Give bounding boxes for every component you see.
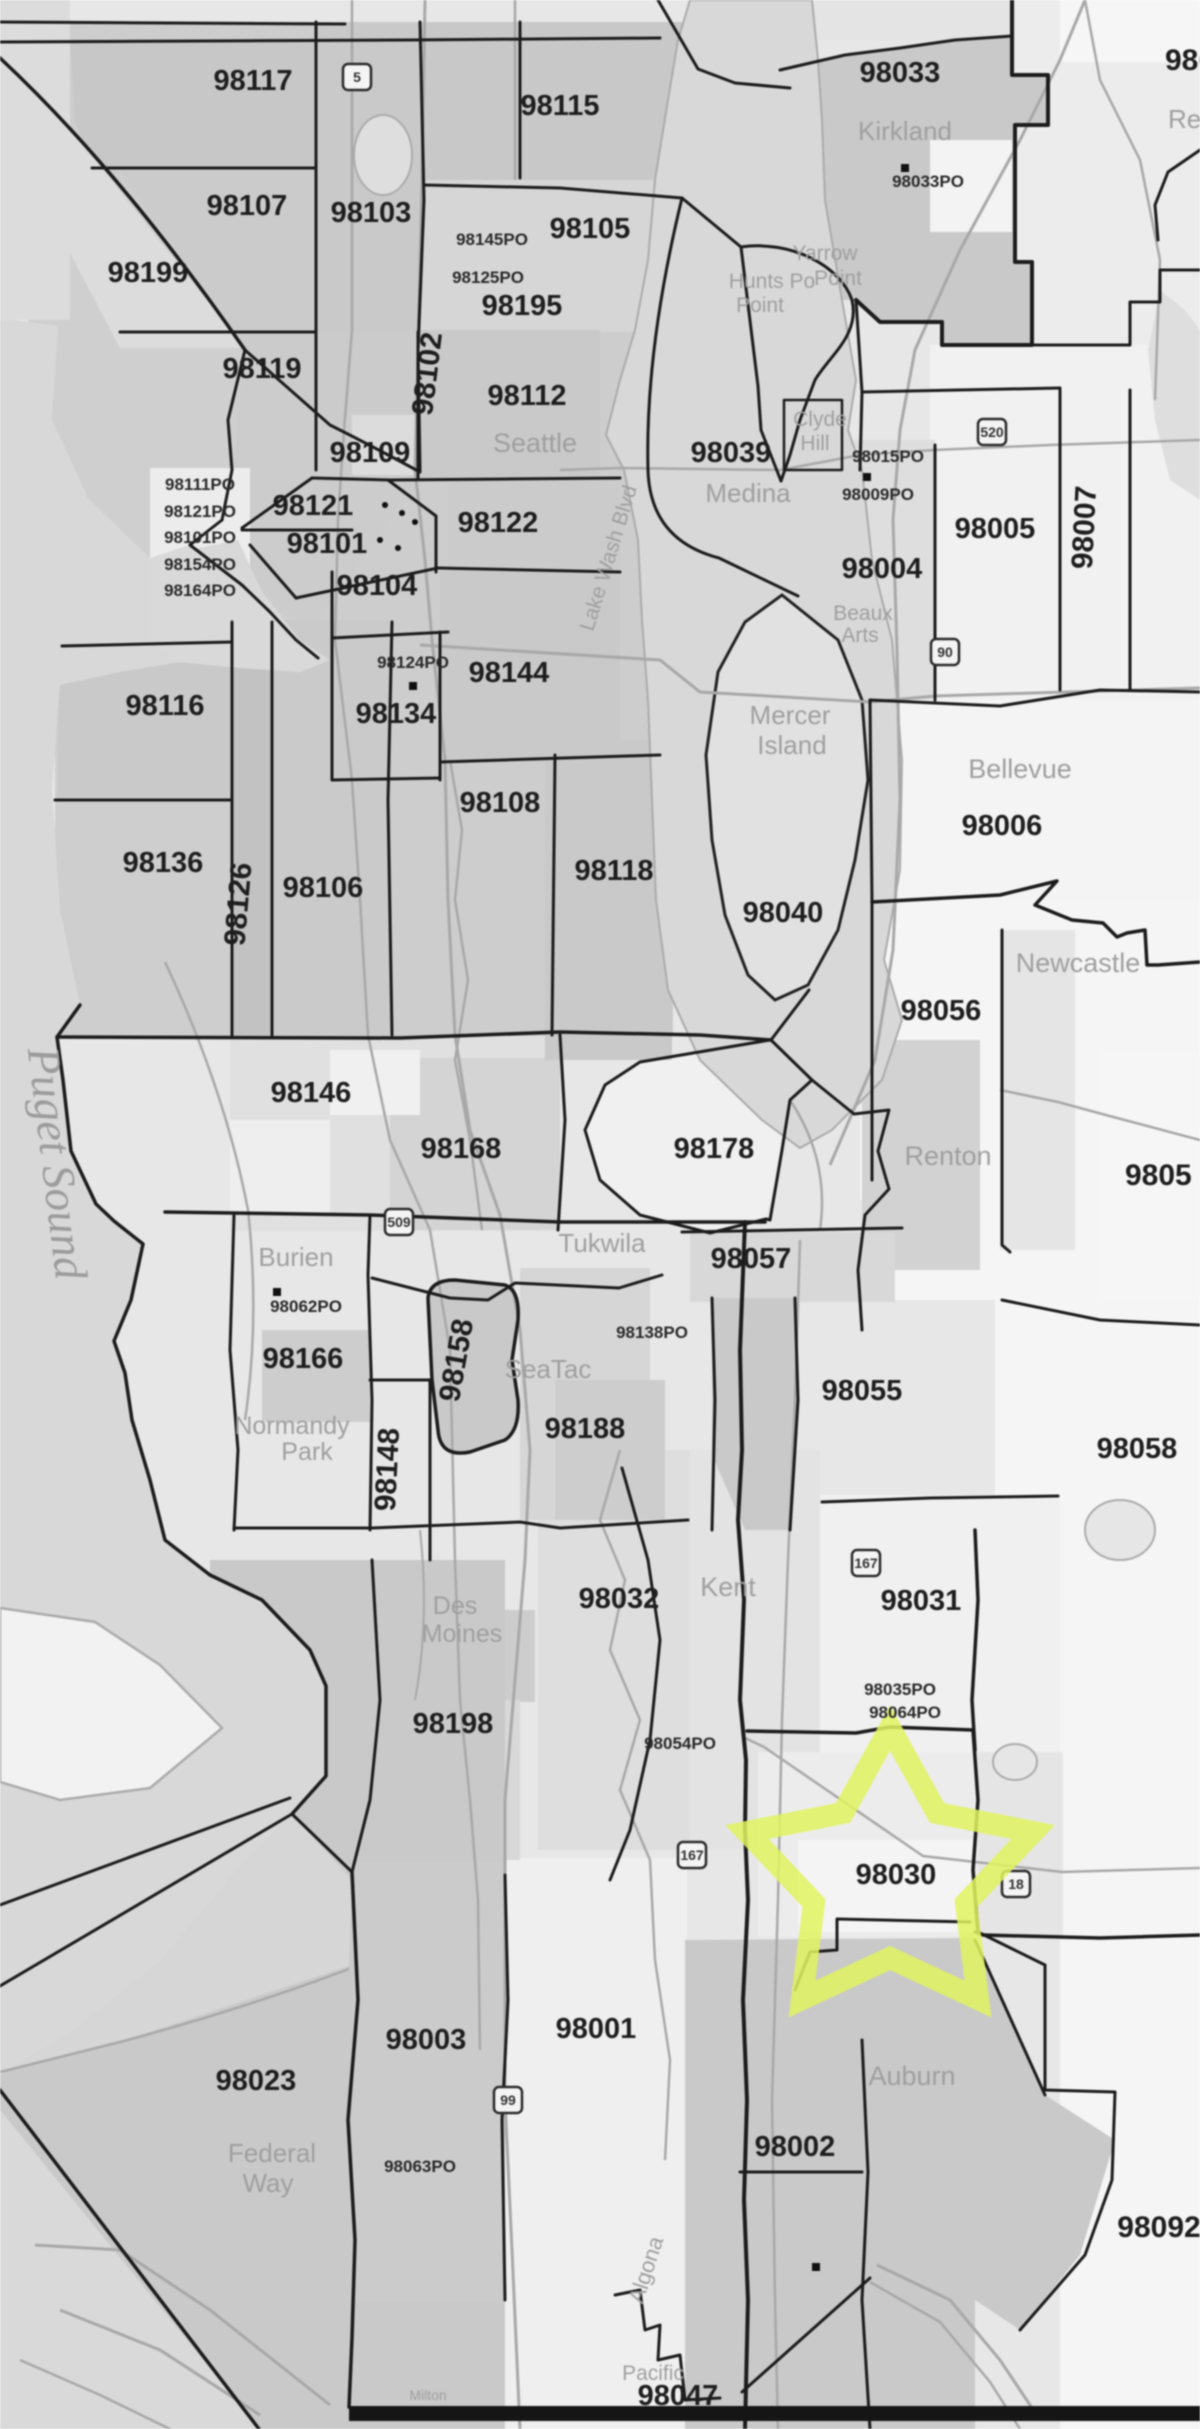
svg-text:Bellevue: Bellevue [968, 754, 1072, 784]
svg-text:5: 5 [353, 69, 361, 85]
svg-text:98033: 98033 [860, 57, 941, 89]
svg-text:Burien: Burien [258, 1242, 333, 1272]
svg-text:98111PO: 98111PO [165, 475, 235, 494]
svg-text:98107: 98107 [207, 190, 288, 222]
svg-text:98040: 98040 [743, 897, 824, 929]
svg-text:98144: 98144 [469, 657, 550, 689]
svg-text:98199: 98199 [108, 257, 189, 289]
svg-text:98092: 98092 [1117, 2211, 1200, 2244]
svg-text:Mercer: Mercer [750, 700, 831, 730]
svg-text:Renton: Renton [904, 1141, 991, 1171]
svg-text:Seattle: Seattle [493, 428, 577, 458]
svg-text:98033PO: 98033PO [892, 172, 964, 191]
svg-text:98188: 98188 [545, 1413, 626, 1445]
svg-text:98032: 98032 [579, 1583, 660, 1615]
svg-text:98109: 98109 [330, 437, 411, 469]
svg-text:98121PO: 98121PO [164, 502, 236, 521]
svg-text:98064PO: 98064PO [869, 1703, 941, 1722]
svg-text:98002: 98002 [755, 2131, 836, 2163]
svg-text:98122: 98122 [458, 507, 539, 539]
svg-text:98055: 98055 [822, 1375, 903, 1407]
svg-text:98198: 98198 [413, 1708, 494, 1740]
svg-text:Point: Point [814, 267, 862, 290]
svg-text:Milton: Milton [409, 2387, 446, 2403]
svg-text:Federal: Federal [228, 2138, 316, 2168]
svg-text:Yarrow: Yarrow [793, 242, 859, 265]
svg-text:98058: 98058 [1097, 1433, 1178, 1465]
svg-text:98112: 98112 [487, 380, 566, 412]
svg-text:99: 99 [500, 2092, 516, 2108]
svg-text:98004: 98004 [842, 553, 923, 585]
svg-text:Newcastle: Newcastle [1016, 948, 1141, 978]
svg-text:98057: 98057 [711, 1243, 792, 1275]
svg-text:Way: Way [242, 2168, 293, 2198]
svg-text:98115: 98115 [520, 90, 599, 122]
svg-text:Pacific: Pacific [622, 2362, 684, 2385]
svg-text:Arts: Arts [841, 624, 878, 647]
svg-text:98125PO: 98125PO [452, 268, 524, 287]
svg-text:98007: 98007 [1066, 485, 1103, 570]
svg-text:98001: 98001 [556, 2013, 637, 2045]
svg-text:Island: Island [757, 730, 826, 760]
svg-text:98103: 98103 [331, 197, 412, 229]
svg-text:98031: 98031 [881, 1585, 962, 1617]
svg-text:Tukwila: Tukwila [558, 1228, 646, 1258]
svg-text:98005: 98005 [955, 513, 1036, 545]
svg-text:98106: 98106 [283, 872, 364, 904]
svg-text:Kent: Kent [700, 1572, 756, 1602]
svg-text:Moines: Moines [422, 1620, 503, 1648]
svg-text:98117: 98117 [213, 65, 292, 97]
svg-text:98136: 98136 [123, 847, 204, 879]
svg-text:Park: Park [281, 1438, 333, 1466]
svg-text:98121: 98121 [273, 490, 354, 522]
svg-text:98062PO: 98062PO [270, 1297, 342, 1316]
svg-text:98035PO: 98035PO [864, 1680, 936, 1699]
svg-text:98138PO: 98138PO [616, 1323, 688, 1342]
svg-text:98108: 98108 [460, 787, 541, 819]
svg-text:98006: 98006 [962, 810, 1043, 842]
svg-text:98145PO: 98145PO [456, 230, 528, 249]
svg-text:SeaTac: SeaTac [505, 1354, 592, 1384]
svg-text:98015PO: 98015PO [852, 447, 924, 466]
svg-text:Clyde: Clyde [793, 408, 847, 431]
svg-text:98168: 98168 [421, 1133, 502, 1165]
svg-text:98023: 98023 [216, 2065, 297, 2097]
svg-text:98134: 98134 [356, 698, 437, 730]
svg-text:98009PO: 98009PO [842, 485, 914, 504]
svg-text:98124PO: 98124PO [377, 653, 449, 672]
svg-text:Redmond: Redmond [1168, 104, 1200, 134]
svg-text:98148: 98148 [369, 1427, 406, 1512]
svg-text:Auburn: Auburn [868, 2061, 955, 2091]
svg-text:98146: 98146 [271, 1077, 352, 1109]
svg-text:98105: 98105 [550, 213, 631, 245]
svg-text:98119: 98119 [222, 353, 301, 385]
svg-text:98104: 98104 [337, 570, 418, 602]
svg-text:Beaux: Beaux [833, 602, 893, 625]
svg-text:98116: 98116 [125, 690, 204, 722]
svg-text:Medina: Medina [705, 478, 791, 508]
svg-text:520: 520 [980, 424, 1004, 440]
svg-text:Hunts Po: Hunts Po [729, 270, 815, 293]
svg-text:Des: Des [433, 1592, 477, 1620]
svg-text:98101: 98101 [287, 528, 368, 560]
svg-text:9805: 9805 [1125, 1159, 1192, 1192]
svg-text:98003: 98003 [386, 2024, 467, 2056]
svg-text:98154PO: 98154PO [164, 555, 236, 574]
svg-text:Hill: Hill [800, 432, 829, 455]
svg-text:98063PO: 98063PO [384, 2157, 456, 2176]
svg-text:Normandy: Normandy [234, 1412, 350, 1440]
svg-text:167: 167 [680, 1847, 704, 1863]
svg-text:509: 509 [387, 1214, 411, 1230]
svg-text:98054PO: 98054PO [644, 1734, 716, 1753]
svg-text:9803: 9803 [1165, 44, 1200, 77]
svg-text:167: 167 [854, 1555, 878, 1571]
svg-text:98195: 98195 [482, 290, 563, 322]
svg-text:98166: 98166 [263, 1343, 344, 1375]
svg-text:Point: Point [736, 294, 784, 317]
svg-text:98118: 98118 [574, 855, 653, 887]
svg-text:Kirkland: Kirkland [858, 116, 952, 146]
svg-text:98030: 98030 [856, 1859, 937, 1891]
svg-text:98101PO: 98101PO [164, 528, 236, 547]
svg-text:98164PO: 98164PO [164, 581, 236, 600]
svg-text:98178: 98178 [674, 1133, 755, 1165]
svg-text:18: 18 [1008, 1876, 1024, 1892]
svg-text:90: 90 [937, 644, 953, 660]
svg-text:98039: 98039 [691, 437, 772, 469]
svg-text:98056: 98056 [901, 995, 982, 1027]
